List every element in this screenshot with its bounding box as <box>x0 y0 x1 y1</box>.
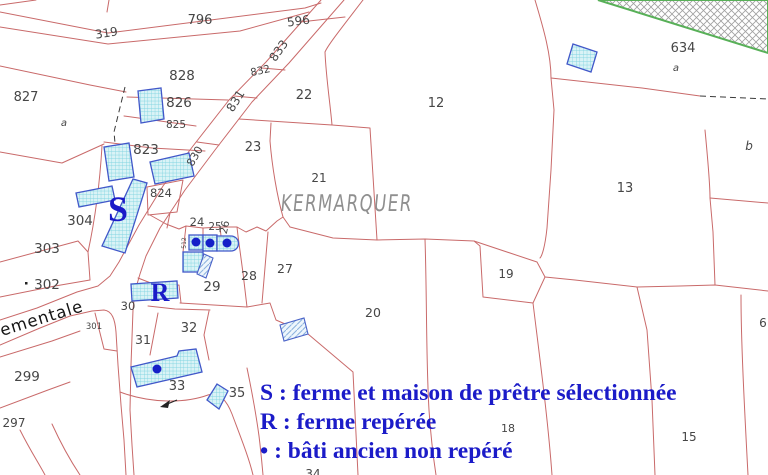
parcel-label-825: 825 <box>166 119 186 131</box>
parcel-label-28: 28 <box>241 268 257 283</box>
bati-ancien-dot <box>223 239 232 248</box>
parcel-label-30: 30 <box>121 299 136 313</box>
parcel-label-33: 33 <box>169 379 186 394</box>
parcel-label-27: 27 <box>277 261 293 276</box>
parcel-label-826: 826 <box>166 95 192 111</box>
parcel-label-32: 32 <box>181 321 198 336</box>
parcel-label-297: 297 <box>3 416 26 430</box>
parcel-label-34: 34 <box>305 467 320 475</box>
legend-line-bati-ancien: • : bâti ancien non repéré <box>260 438 513 464</box>
bati-ancien-dot <box>192 238 201 247</box>
parcel-label-15: 15 <box>681 430 696 444</box>
parcel-label-302: 302 <box>34 277 60 293</box>
parcel-label-827: 827 <box>14 90 39 105</box>
parcel-label-828: 828 <box>169 68 195 84</box>
parcel-label-299: 299 <box>14 369 40 385</box>
parcel-label-823: 823 <box>133 142 159 158</box>
legend-line-reperee: R : ferme repérée <box>260 409 436 435</box>
parcel-label-b: b <box>745 139 753 153</box>
parcel-label-23: 23 <box>245 140 262 155</box>
parcel-label-6: 6 <box>759 316 767 330</box>
parcel-label-35: 35 <box>229 386 246 401</box>
bati-ancien-dot <box>206 239 215 248</box>
parcel-label-31: 31 <box>135 332 151 347</box>
building-823-west <box>104 143 134 181</box>
parcel-label-13: 13 <box>617 181 634 196</box>
parcel-label-634: 634 <box>671 41 696 56</box>
legend-line-selectionnee: S : ferme et maison de prêtre sélectionn… <box>260 380 677 406</box>
parcel-label-303: 303 <box>34 241 60 257</box>
bati-ancien-dot <box>153 365 162 374</box>
parcel-label-12: 12 <box>428 96 445 111</box>
small-dot-302 <box>25 282 28 285</box>
parcel-label-304: 304 <box>67 213 93 229</box>
parcel-label-a: a <box>61 118 67 129</box>
parcel-label-19: 19 <box>498 267 513 281</box>
parcel-label-22: 22 <box>296 88 313 103</box>
parcel-label-18: 18 <box>501 422 515 435</box>
parcel-label-824: 824 <box>150 186 172 200</box>
parcel-label-a: a <box>673 63 679 74</box>
cadastral-map: 796319596833832831830827828826825823824a… <box>0 0 768 475</box>
building-826 <box>138 88 164 123</box>
parcel-label-796: 796 <box>188 13 213 28</box>
parcel-label-29: 29 <box>203 279 220 295</box>
marker-r-ferme-reperee: R <box>151 278 170 307</box>
parcel-label-301: 301 <box>86 322 102 332</box>
parcel-label-21: 21 <box>311 171 326 185</box>
parcel-label-512: 512 <box>181 237 188 249</box>
marker-s-ferme-selectionnee: S <box>108 189 128 229</box>
map-canvas: 796319596833832831830827828826825823824a… <box>0 0 768 475</box>
place-name-kermarquer: KERMARQUER <box>279 191 414 217</box>
parcel-label-24: 24 <box>190 215 205 229</box>
parcel-label-20: 20 <box>365 305 381 320</box>
